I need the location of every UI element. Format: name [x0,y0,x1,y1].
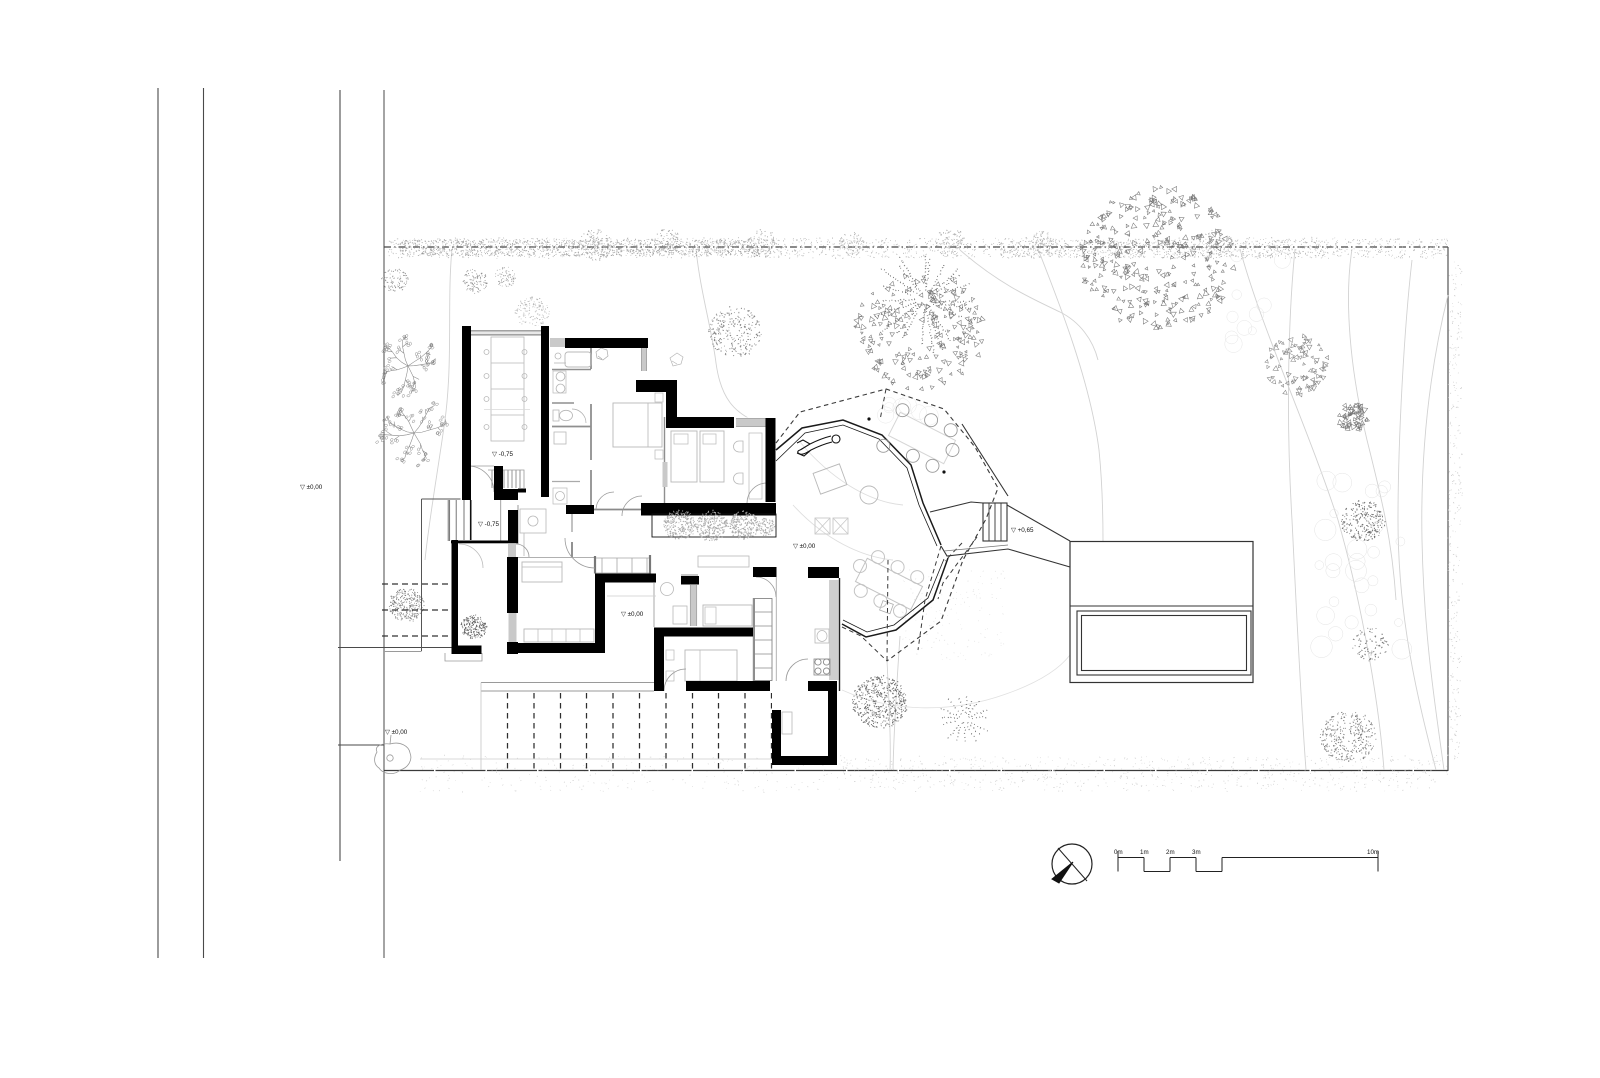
svg-text:▽ ±0,00: ▽ ±0,00 [385,729,408,736]
svg-text:0m: 0m [1114,849,1123,856]
svg-text:▽ -0,75: ▽ -0,75 [478,521,499,528]
svg-text:▽ ±0,00: ▽ ±0,00 [300,484,323,491]
svg-text:▽ +0,65: ▽ +0,65 [1011,527,1034,534]
svg-text:10m: 10m [1367,849,1379,856]
svg-text:▽ ±0,00: ▽ ±0,00 [621,611,644,618]
svg-text:2m: 2m [1166,849,1175,856]
svg-text:1m: 1m [1140,849,1149,856]
svg-text:▽ -0,75: ▽ -0,75 [492,451,513,458]
svg-text:3m: 3m [1192,849,1201,856]
svg-text:▽ ±0,00: ▽ ±0,00 [793,543,816,550]
